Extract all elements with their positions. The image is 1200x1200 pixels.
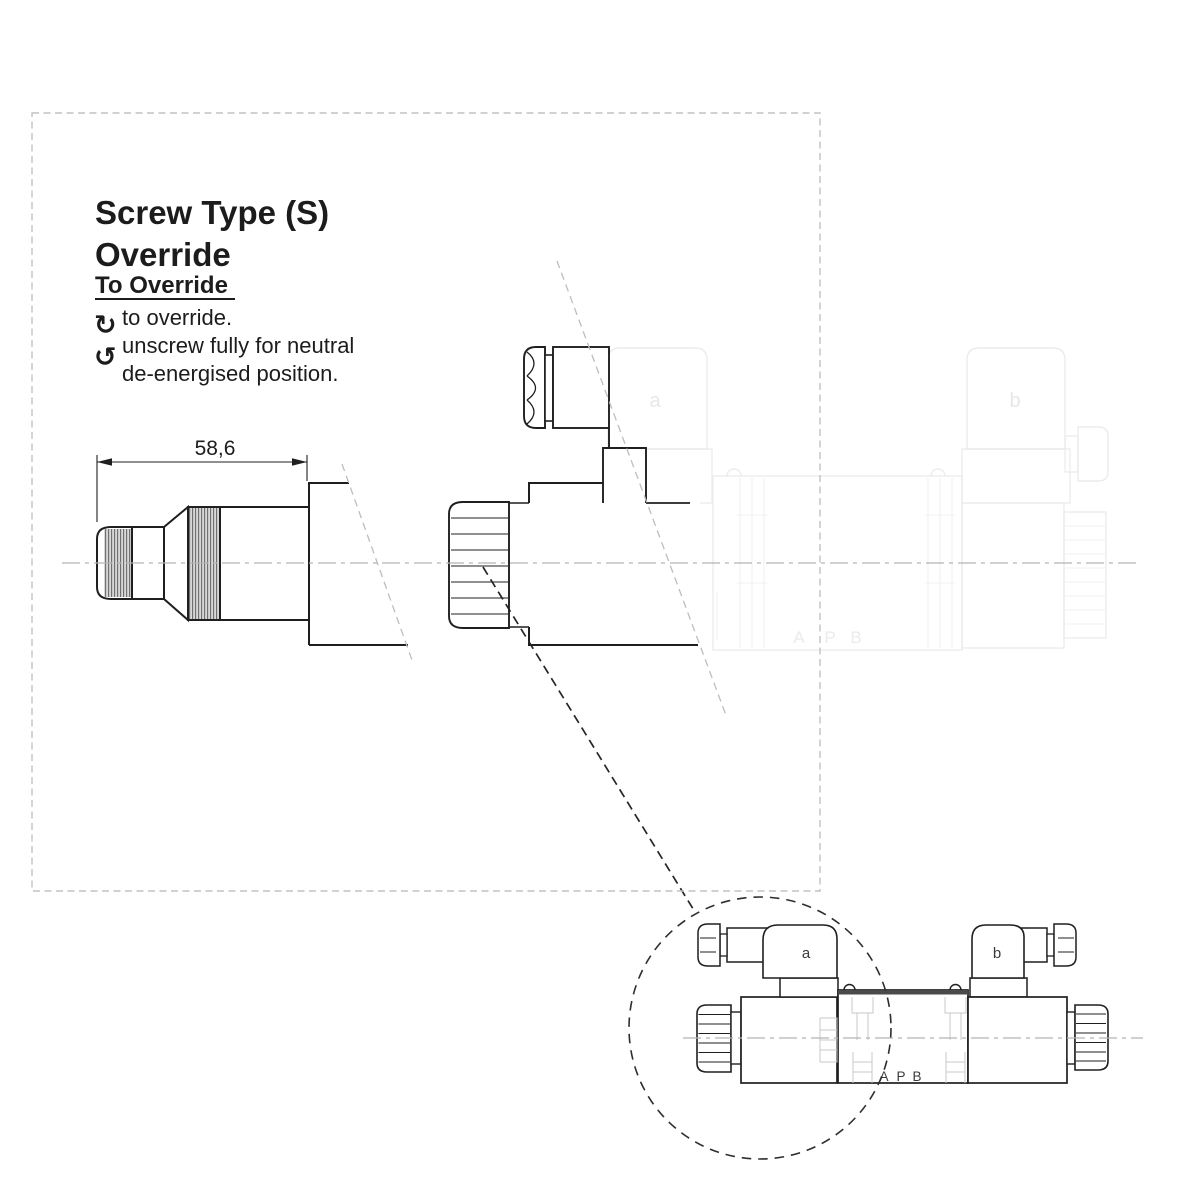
- instruction-step2-line1: unscrew fully for neutral: [122, 333, 354, 358]
- screw-override-drawing: 58,6: [97, 437, 408, 645]
- heading-block: Screw Type (S) Override To Override ↻ to…: [94, 194, 354, 386]
- rotate-ccw-icon: ↺: [94, 342, 117, 373]
- ghost-gland-neck-b: [1065, 436, 1078, 472]
- detail-connector-arm-b: [1021, 928, 1047, 962]
- solenoid-body-fill: [529, 483, 700, 645]
- ghost-port-b-label: B: [850, 628, 861, 647]
- break-line-flange: [342, 464, 412, 660]
- override-knob: [449, 502, 509, 628]
- detail-solenoid-b-label: b: [993, 945, 1001, 962]
- ghost-port-p-label: P: [824, 628, 835, 647]
- detail-solenoid-a-label: a: [802, 945, 811, 962]
- mounting-flange-outline: [309, 483, 408, 645]
- detail-gland-neck-a: [720, 934, 727, 956]
- detail-solenoid-right: [968, 997, 1067, 1083]
- ghost-gland-cap-b: [1078, 427, 1108, 481]
- instruction-step2-line2: de-energised position.: [122, 361, 338, 386]
- solenoid-pedestal: [603, 448, 646, 503]
- ghost-knurl-right: [1064, 512, 1106, 638]
- rotate-cw-icon: ↻: [94, 310, 117, 341]
- ghost-solenoid-right: [962, 503, 1064, 648]
- detail-port-b-label: B: [912, 1069, 921, 1084]
- instruction-step1: to override.: [122, 305, 232, 330]
- detail-valve-body-top-band: [838, 990, 968, 995]
- page-title-line1: Screw Type (S): [95, 194, 329, 231]
- detail-port-p-label: P: [896, 1069, 905, 1084]
- ghost-pedestal-b: [962, 449, 1070, 503]
- connector-body: [553, 347, 609, 428]
- dimension-arrow-left: [97, 458, 112, 466]
- dimension-label: 58,6: [195, 437, 236, 460]
- detail-pedestal-a: [780, 978, 838, 997]
- ghost-dome-left: [727, 469, 741, 476]
- ghost-dome-right: [931, 469, 945, 476]
- dimension-arrow-right: [292, 458, 307, 466]
- page-title-line2: Override: [95, 236, 231, 273]
- drawing-canvas: a b A P B 58,6: [0, 0, 1200, 1200]
- detail-pedestal-b: [970, 978, 1027, 997]
- engineering-drawing-page: a b A P B 58,6: [0, 0, 1200, 1200]
- ghost-port-a-label: A: [793, 628, 805, 647]
- ghost-solenoid-b-label: b: [1009, 390, 1020, 412]
- detail-gland-cap-b: [1054, 924, 1076, 966]
- cable-gland-neck: [545, 355, 553, 421]
- knob-shaft-lines: [509, 503, 529, 627]
- cable-gland-cap: [524, 347, 545, 428]
- detail-view-valve: a b A P B: [629, 897, 1143, 1159]
- detail-gland-cap-a: [698, 924, 720, 966]
- subtitle: To Override: [95, 272, 228, 299]
- ghost-solenoid-a-label: a: [649, 390, 661, 412]
- detail-connector-a: [763, 925, 837, 978]
- detail-gland-neck-b: [1047, 934, 1054, 956]
- ghost-knurl-ribs: [1064, 526, 1106, 624]
- solenoid-detail-drawing: [449, 347, 700, 645]
